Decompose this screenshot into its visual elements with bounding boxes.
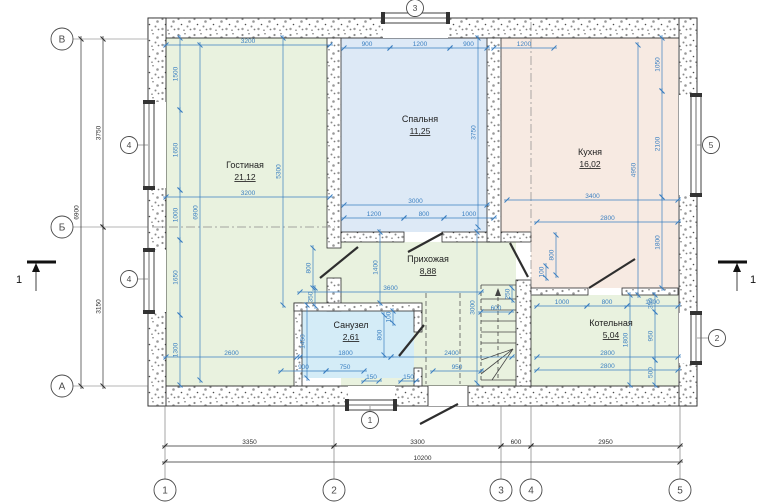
dim-label: 6900: [193, 205, 200, 220]
floor-plan-page: 3200900120090012003200300012008001000340…: [0, 0, 765, 502]
floor-plan-canvas: 3200900120090012003200300012008001000340…: [0, 0, 765, 502]
dimension: 3150: [96, 224, 106, 389]
room-hallway-name: Прихожая: [407, 254, 449, 264]
window-sill: [381, 12, 385, 24]
room-living-area: 21,12: [234, 172, 256, 182]
room-kitchen-area: 16,02: [579, 159, 601, 169]
dim-label: 600: [511, 439, 522, 446]
partition-wall: [327, 38, 341, 248]
partition-wall: [341, 232, 404, 242]
room-bedroom-name: Спальня: [402, 114, 438, 124]
dim-label: 1300: [173, 342, 180, 357]
dim-label: 2800: [600, 363, 615, 370]
section-arrow: [733, 263, 741, 272]
window-sill: [393, 399, 397, 411]
dim-label: 900: [463, 41, 474, 48]
opening-mark-4: 4: [121, 137, 138, 154]
dim-label: 150: [403, 374, 414, 381]
dimension: 2950: [528, 439, 683, 449]
section-label: 1: [750, 274, 756, 286]
section-mark-left: 1: [16, 262, 56, 291]
dimension: 600: [498, 439, 534, 449]
dim-label: 1200: [367, 211, 382, 218]
grid-axis-Б-label: Б: [59, 223, 66, 234]
dim-label: 3200: [241, 190, 256, 197]
room-kitchen-name: Кухня: [578, 147, 602, 157]
grid-axis-А: А: [51, 375, 73, 397]
entry-door-leaf: [420, 404, 458, 424]
grid-axis-3-label: 3: [498, 486, 504, 497]
grid-axis-3: 3: [490, 479, 512, 501]
partition-wall: [487, 38, 501, 242]
dim-label: 3600: [383, 285, 398, 292]
dim-label: 3750: [96, 125, 103, 140]
dim-label: 2100: [655, 136, 662, 151]
dim-label: 100: [386, 311, 393, 322]
window-sill: [446, 12, 450, 24]
window-sill: [690, 193, 702, 197]
opening-mark-3-label: 3: [413, 3, 418, 13]
dim-label: 800: [419, 211, 430, 218]
dim-label: 3300: [410, 439, 425, 446]
dim-label: 150: [366, 374, 377, 381]
dimension: 3350: [162, 439, 337, 449]
opening-mark-1-label: 1: [368, 415, 373, 425]
dim-label: 350: [648, 298, 655, 309]
grid-axis-5-label: 5: [677, 486, 683, 497]
dim-label: 100: [539, 266, 546, 277]
dim-label: 800: [549, 249, 556, 260]
exterior-wall: [148, 18, 166, 406]
dim-label: 1650: [173, 270, 180, 285]
dimension: 6900: [74, 36, 84, 389]
dim-label: 750: [340, 364, 351, 371]
opening-mark-1: 1: [362, 412, 379, 429]
dim-label: 1800: [623, 332, 630, 347]
grid-axis-2-label: 2: [331, 486, 337, 497]
dim-label: 250: [505, 288, 512, 299]
dim-label: 1650: [173, 142, 180, 157]
partition-wall: [622, 288, 678, 295]
opening-mark-4: 4: [121, 271, 138, 288]
room-bedroom-area: 11,25: [410, 126, 431, 136]
window-sill: [143, 310, 155, 314]
opening-mark-5: 5: [703, 137, 720, 154]
exterior-wall: [148, 386, 697, 406]
room-boiler-fill: [531, 295, 678, 386]
partition-wall: [414, 368, 422, 386]
dim-label: 2400: [444, 350, 459, 357]
grid-axis-А-label: А: [59, 382, 66, 393]
dim-label: 1800: [338, 350, 353, 357]
dim-label: 350: [308, 291, 315, 302]
room-boiler-area: 5,04: [603, 330, 620, 340]
room-living-fill: [166, 38, 327, 248]
grid-axis-5: 5: [669, 479, 691, 501]
window-sill: [690, 93, 702, 97]
grid-axis-1: 1: [154, 479, 176, 501]
dim-label: 950: [452, 364, 463, 371]
room-living-fill: [166, 248, 294, 386]
dim-label: 1050: [655, 57, 662, 72]
grid-axis-В-label: В: [59, 35, 66, 46]
window-bottom: [345, 386, 397, 411]
grid-axis-2: 2: [323, 479, 345, 501]
dim-label: 900: [362, 41, 373, 48]
window-sill: [345, 399, 349, 411]
dim-label: 1200: [517, 41, 532, 48]
dim-label: 1000: [555, 299, 570, 306]
dim-label: 800: [602, 299, 613, 306]
dim-label: 3000: [408, 198, 423, 205]
grid-axis-Б: Б: [51, 216, 73, 238]
opening-mark-2: 2: [709, 330, 726, 347]
dimension: 3300: [331, 439, 504, 449]
dim-label: 600: [491, 305, 502, 312]
dimension: 10200: [162, 455, 683, 465]
dimension: 3750: [96, 36, 106, 230]
section-mark-right: 1: [718, 262, 756, 291]
dim-label: 900: [298, 364, 309, 371]
dim-label: 4950: [631, 162, 638, 177]
room-hallway-area: 8,88: [420, 266, 437, 276]
room-boiler-name: Котельная: [589, 318, 633, 328]
window-sill: [143, 186, 155, 190]
dim-label: 1000: [462, 211, 477, 218]
section-label: 1: [16, 274, 22, 286]
room-bathroom-area: 2,61: [343, 332, 360, 342]
opening-mark-4-label: 4: [127, 140, 132, 150]
window-sill: [143, 248, 155, 252]
dim-label: 1500: [173, 66, 180, 81]
dim-label: 2800: [600, 215, 615, 222]
grid-axis-4: 4: [520, 479, 542, 501]
dim-label: 3750: [471, 125, 478, 140]
dim-label: 2600: [224, 350, 239, 357]
dim-label: 800: [377, 329, 384, 340]
dim-label: 2800: [600, 350, 615, 357]
grid-axis-1-label: 1: [162, 486, 168, 497]
dim-label: 3000: [470, 300, 477, 315]
partition-wall: [516, 280, 531, 386]
dim-label: 1450: [300, 334, 307, 349]
window-left-lower: [143, 248, 166, 314]
dim-label: 1000: [173, 207, 180, 222]
dim-label: 6900: [74, 205, 81, 220]
dim-label: 1200: [413, 41, 428, 48]
opening-mark-5-label: 5: [709, 140, 714, 150]
dim-label: 5300: [276, 164, 283, 179]
dim-label: 3400: [585, 193, 600, 200]
dim-label: 3150: [96, 299, 103, 314]
dim-label: 1400: [373, 260, 380, 275]
room-living-name: Гостиная: [226, 160, 264, 170]
room-hallway-fill: [481, 242, 516, 386]
partition-wall: [442, 232, 531, 242]
opening-mark-4-label: 4: [127, 274, 132, 284]
room-kitchen-fill: [501, 38, 678, 232]
dim-label: 10200: [413, 455, 431, 462]
opening-mark-3: 3: [407, 0, 424, 17]
window-sill: [143, 100, 155, 104]
partition-wall: [531, 288, 588, 295]
window-sill: [690, 361, 702, 365]
dim-label: 3350: [242, 439, 257, 446]
dim-label: 2950: [598, 439, 613, 446]
dim-label: 3200: [241, 38, 256, 45]
dim-label: 950: [648, 330, 655, 341]
dim-label: 500: [648, 367, 655, 378]
window-sill: [690, 311, 702, 315]
opening-mark-2-label: 2: [715, 333, 720, 343]
room-bathroom-name: Санузел: [333, 320, 368, 330]
dim-label: 1800: [655, 235, 662, 250]
grid-axis-В: В: [51, 28, 73, 50]
dim-label: 800: [306, 262, 313, 273]
grid-axis-4-label: 4: [528, 486, 534, 497]
section-arrow: [32, 263, 40, 272]
